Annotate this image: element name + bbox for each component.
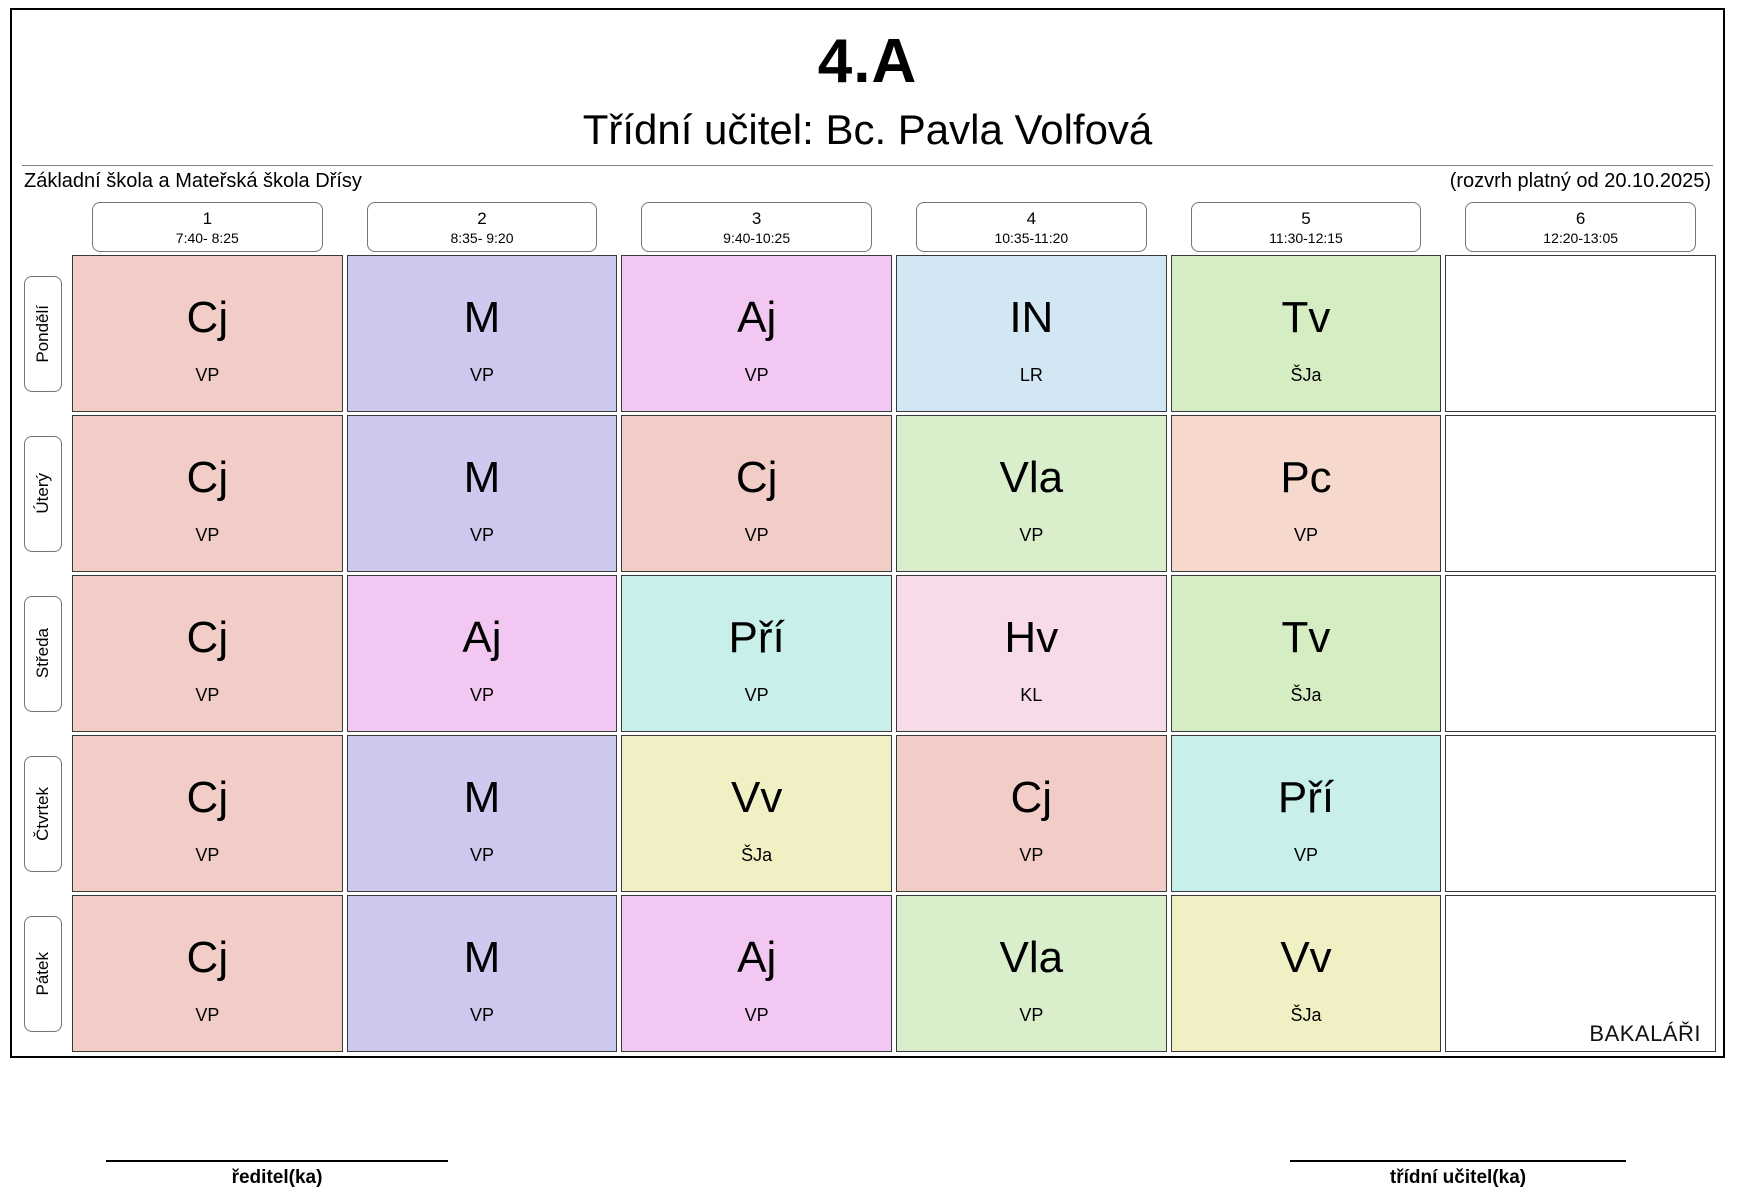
lesson-cell: AjVP [621, 895, 892, 1052]
director-signature-line [106, 1160, 448, 1162]
period-number: 5 [1301, 208, 1310, 230]
teacher-abbreviation: VP [195, 846, 219, 864]
teacher-abbreviation: VP [195, 526, 219, 544]
teacher-abbreviation: VP [470, 846, 494, 864]
subject-abbreviation: Cj [187, 296, 229, 340]
period-time: 8:35- 9:20 [450, 230, 513, 247]
day-label: Čtvrtek [33, 787, 53, 841]
lesson-cell: CjVP [896, 735, 1167, 892]
subject-abbreviation: Vla [1000, 936, 1064, 980]
subject-abbreviation: Pc [1280, 456, 1331, 500]
lesson-cell: TvŠJa [1171, 255, 1442, 412]
period-header-4: 410:35-11:20 [916, 202, 1147, 252]
lesson-cell: MVP [347, 735, 618, 892]
validity-note: (rozvrh platný od 20.10.2025) [1450, 170, 1711, 193]
page-title: 4.A [12, 26, 1723, 97]
lesson-cell: VlaVP [896, 415, 1167, 572]
period-time: 7:40- 8:25 [176, 230, 239, 247]
teacher-abbreviation: VP [1294, 846, 1318, 864]
teacher-abbreviation: VP [1019, 846, 1043, 864]
lesson-cell: VvŠJa [621, 735, 892, 892]
teacher-abbreviation: LR [1020, 366, 1043, 384]
day-header-4: Čtvrtek [22, 735, 68, 892]
teacher-abbreviation: VP [470, 1006, 494, 1024]
subject-abbreviation: Vv [1280, 936, 1331, 980]
lesson-cell: VlaVP [896, 895, 1167, 1052]
school-name: Základní škola a Mateřská škola Dřísy [24, 170, 362, 193]
lesson-cell: MVP [347, 415, 618, 572]
period-time: 9:40-10:25 [723, 230, 790, 247]
bakalari-logo: B BAKALÁŘI [1551, 1017, 1701, 1050]
period-number: 3 [752, 208, 761, 230]
info-row: Základní škola a Mateřská škola Dřísy (r… [24, 170, 1711, 193]
class-teacher-signature-label: třídní učitel(ka) [1290, 1167, 1626, 1189]
period-header-5: 511:30-12:15 [1191, 202, 1422, 252]
subject-abbreviation: Vla [1000, 456, 1064, 500]
subject-abbreviation: Aj [737, 936, 776, 980]
teacher-abbreviation: VP [1019, 1006, 1043, 1024]
teacher-abbreviation: ŠJa [1290, 366, 1321, 384]
period-header-6: 612:20-13:05 [1465, 202, 1696, 252]
period-time: 11:30-12:15 [1269, 230, 1343, 247]
teacher-abbreviation: ŠJa [741, 846, 772, 864]
day-box: Pátek [24, 916, 62, 1032]
subject-abbreviation: M [464, 936, 501, 980]
day-header-1: Pondělí [22, 255, 68, 412]
day-header-5: Pátek [22, 895, 68, 1052]
lesson-cell: CjVP [72, 895, 343, 1052]
timetable-sheet: 4.A Třídní učitel: Bc. Pavla Volfová Zák… [10, 8, 1725, 1058]
subject-abbreviation: Hv [1004, 616, 1058, 660]
empty-cell [1445, 735, 1716, 892]
subject-abbreviation: Cj [1011, 776, 1053, 820]
empty-cell [1445, 415, 1716, 572]
subject-abbreviation: Cj [187, 936, 229, 980]
bakalari-logo-text: BAKALÁŘI [1589, 1021, 1701, 1047]
subject-abbreviation: Aj [462, 616, 501, 660]
teacher-abbreviation: VP [1019, 526, 1043, 544]
day-box: Středa [24, 596, 62, 712]
class-teacher-signature-line [1290, 1160, 1626, 1162]
subject-abbreviation: Tv [1282, 616, 1331, 660]
subject-abbreviation: Cj [187, 776, 229, 820]
bakalari-hexagon-icon: B [1551, 1017, 1581, 1050]
teacher-abbreviation: VP [745, 366, 769, 384]
day-box: Čtvrtek [24, 756, 62, 872]
lesson-cell: TvŠJa [1171, 575, 1442, 732]
period-header-1: 17:40- 8:25 [92, 202, 323, 252]
day-label: Úterý [33, 473, 53, 514]
subject-abbreviation: Aj [737, 296, 776, 340]
teacher-abbreviation: ŠJa [1290, 686, 1321, 704]
teacher-abbreviation: VP [470, 526, 494, 544]
subject-abbreviation: M [464, 296, 501, 340]
period-header-3: 39:40-10:25 [641, 202, 872, 252]
empty-cell [1445, 575, 1716, 732]
period-number: 4 [1027, 208, 1036, 230]
subject-abbreviation: Cj [187, 456, 229, 500]
day-label: Středa [33, 628, 53, 678]
subject-abbreviation: Tv [1282, 296, 1331, 340]
teacher-abbreviation: VP [195, 1006, 219, 1024]
lesson-cell: AjVP [347, 575, 618, 732]
period-time: 10:35-11:20 [994, 230, 1068, 247]
lesson-cell: CjVP [72, 575, 343, 732]
day-box: Úterý [24, 436, 62, 552]
director-signature: ředitel(ka) [106, 1160, 448, 1189]
teacher-abbreviation: VP [470, 686, 494, 704]
subject-abbreviation: Vv [731, 776, 782, 820]
teacher-abbreviation: VP [195, 686, 219, 704]
lesson-cell: CjVP [72, 255, 343, 412]
lesson-cell: CjVP [72, 735, 343, 892]
period-header-2: 28:35- 9:20 [367, 202, 598, 252]
subject-abbreviation: Pří [729, 616, 785, 660]
header-divider [22, 165, 1713, 166]
timetable-grid: 17:40- 8:2528:35- 9:2039:40-10:25410:35-… [22, 202, 1716, 1052]
director-signature-label: ředitel(ka) [106, 1167, 448, 1189]
day-header-2: Úterý [22, 415, 68, 572]
lesson-cell: PříVP [1171, 735, 1442, 892]
teacher-abbreviation: ŠJa [1290, 1006, 1321, 1024]
lesson-cell: MVP [347, 255, 618, 412]
day-header-3: Středa [22, 575, 68, 732]
period-time: 12:20-13:05 [1543, 230, 1618, 247]
lesson-cell: CjVP [621, 415, 892, 572]
day-label: Pondělí [33, 305, 53, 363]
period-number: 6 [1576, 208, 1585, 230]
subject-abbreviation: M [464, 456, 501, 500]
empty-cell [1445, 255, 1716, 412]
lesson-cell: VvŠJa [1171, 895, 1442, 1052]
lesson-cell: INLR [896, 255, 1167, 412]
day-box: Pondělí [24, 276, 62, 392]
class-teacher-subtitle: Třídní učitel: Bc. Pavla Volfová [12, 106, 1723, 154]
teacher-abbreviation: VP [745, 526, 769, 544]
class-teacher-signature: třídní učitel(ka) [1290, 1160, 1626, 1189]
lesson-cell: CjVP [72, 415, 343, 572]
lesson-cell: MVP [347, 895, 618, 1052]
teacher-abbreviation: VP [745, 686, 769, 704]
subject-abbreviation: Cj [736, 456, 778, 500]
period-number: 2 [477, 208, 486, 230]
subject-abbreviation: M [464, 776, 501, 820]
teacher-abbreviation: VP [1294, 526, 1318, 544]
subject-abbreviation: Cj [187, 616, 229, 660]
teacher-abbreviation: KL [1020, 686, 1042, 704]
teacher-abbreviation: VP [745, 1006, 769, 1024]
lesson-cell: AjVP [621, 255, 892, 412]
day-label: Pátek [33, 952, 53, 995]
teacher-abbreviation: VP [195, 366, 219, 384]
subject-abbreviation: Pří [1278, 776, 1334, 820]
lesson-cell: PříVP [621, 575, 892, 732]
subject-abbreviation: IN [1009, 296, 1053, 340]
teacher-abbreviation: VP [470, 366, 494, 384]
grid-corner [22, 202, 68, 252]
period-number: 1 [203, 208, 212, 230]
lesson-cell: HvKL [896, 575, 1167, 732]
lesson-cell: PcVP [1171, 415, 1442, 572]
